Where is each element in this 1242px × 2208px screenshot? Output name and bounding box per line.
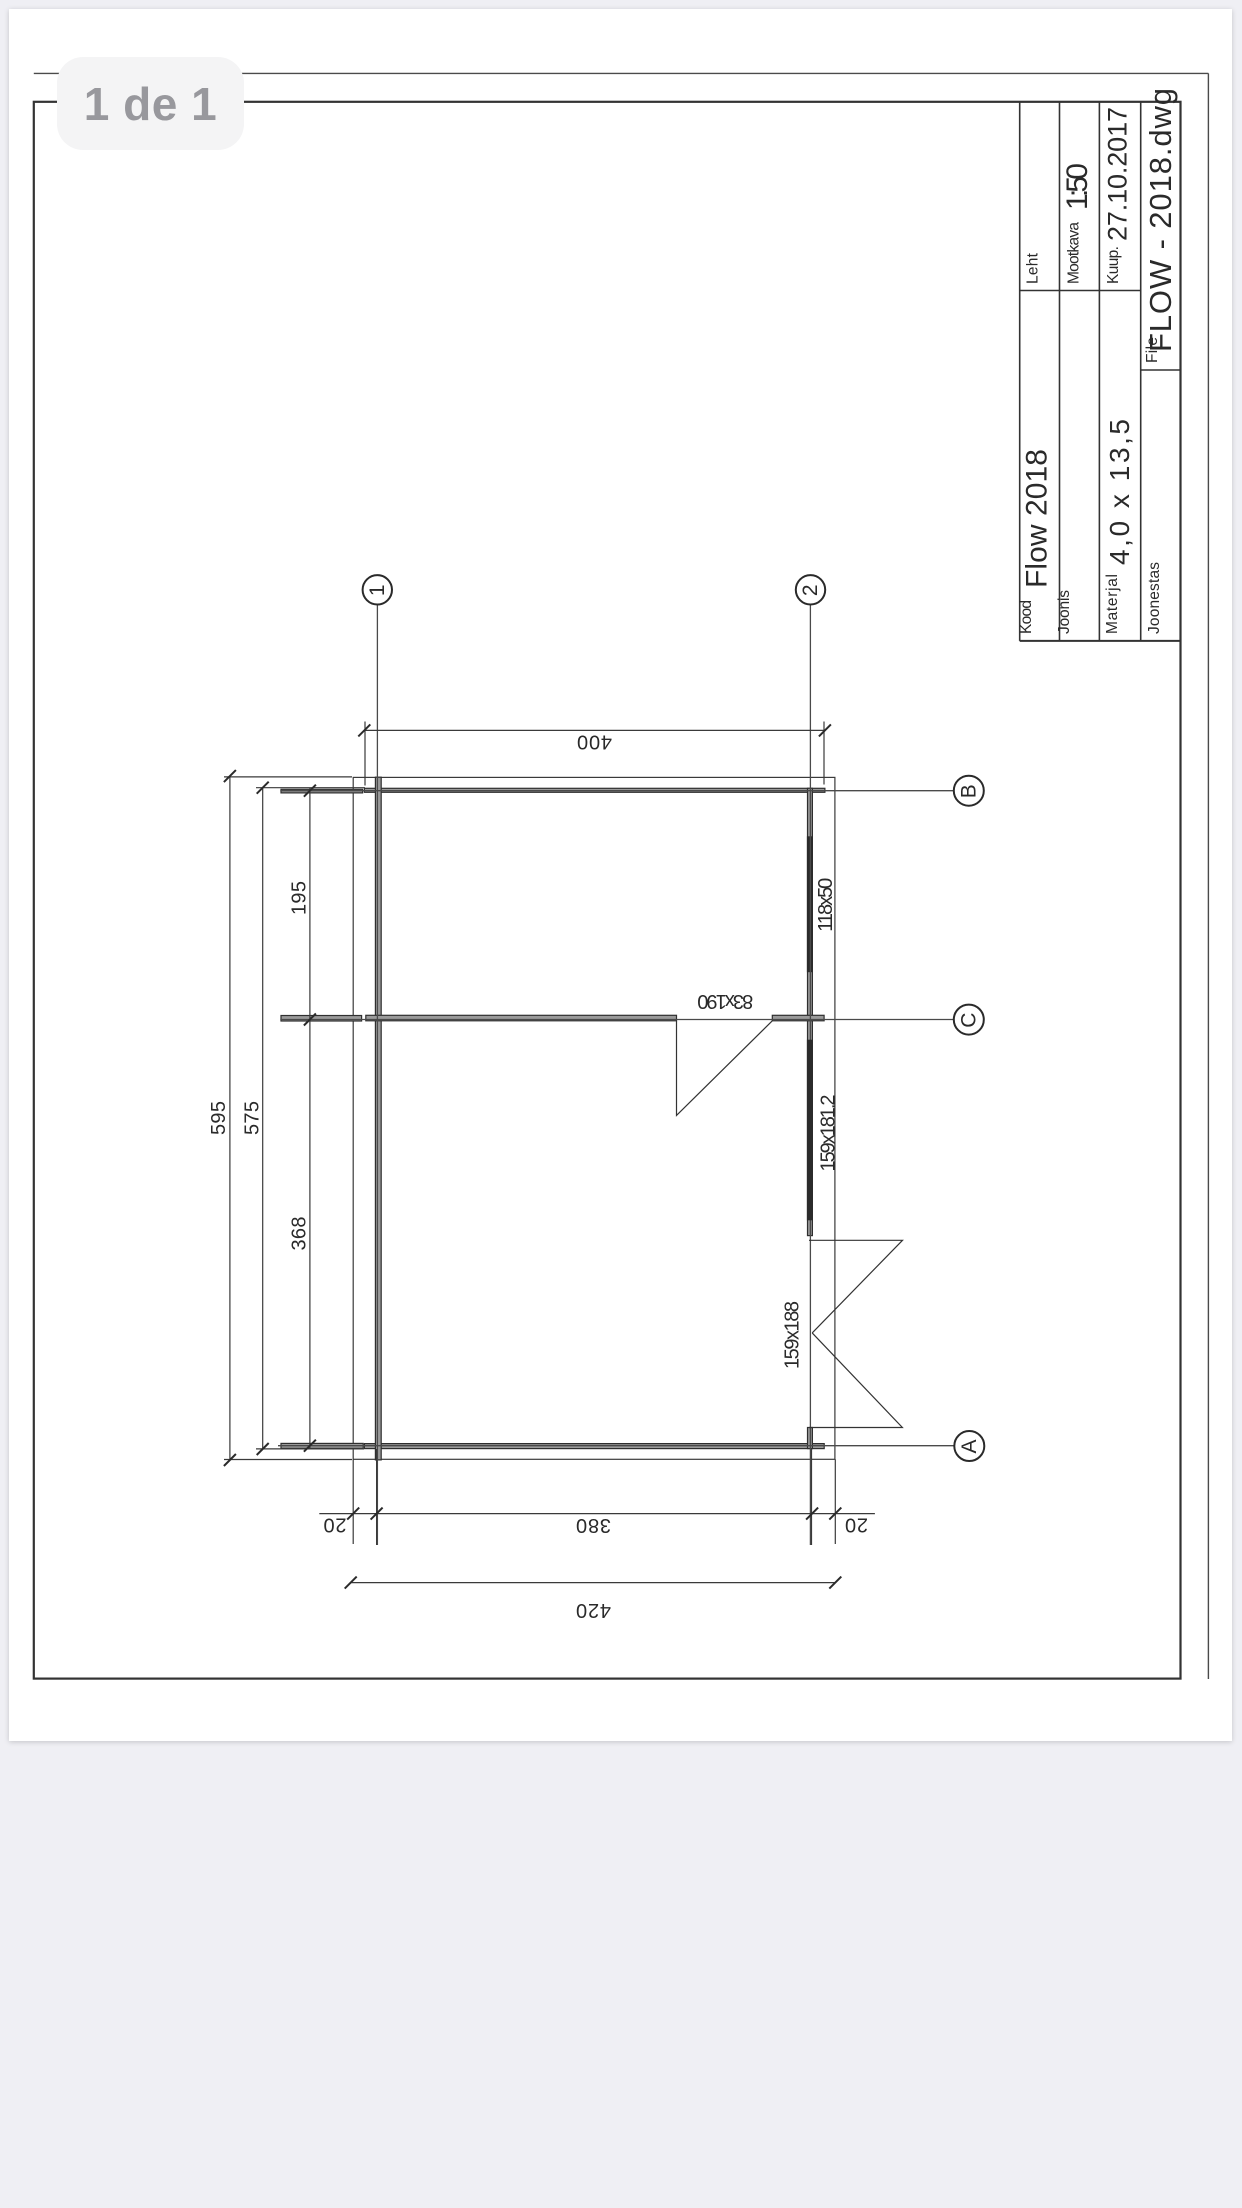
svg-text:20: 20	[845, 1514, 868, 1536]
svg-text:368: 368	[289, 1217, 311, 1251]
svg-text:A: A	[958, 1439, 981, 1453]
svg-text:159x188: 159x188	[781, 1301, 803, 1369]
svg-text:159x181.2: 159x181.2	[818, 1095, 840, 1172]
svg-text:27.10.2017: 27.10.2017	[1103, 107, 1133, 241]
svg-text:Leht: Leht	[1025, 252, 1042, 284]
svg-text:2: 2	[799, 584, 822, 596]
svg-text:83x190: 83x190	[697, 990, 753, 1012]
svg-text:FLOW - 2018.dwg: FLOW - 2018.dwg	[1143, 88, 1178, 352]
svg-text:Joonestas: Joonestas	[1146, 562, 1163, 634]
svg-text:Kuup.: Kuup.	[1105, 246, 1122, 284]
svg-text:380: 380	[576, 1514, 611, 1536]
svg-text:Joonis: Joonis	[1056, 590, 1073, 634]
svg-text:1: 1	[366, 584, 389, 596]
svg-text:1:50: 1:50	[1061, 163, 1094, 210]
svg-text:195: 195	[289, 881, 311, 915]
svg-text:Kood: Kood	[1018, 600, 1035, 634]
svg-text:B: B	[957, 784, 980, 798]
svg-text:118x50: 118x50	[815, 878, 837, 932]
svg-text:Mootkava: Mootkava	[1066, 222, 1083, 284]
svg-text:20: 20	[324, 1514, 347, 1536]
svg-text:400: 400	[577, 731, 612, 753]
svg-text:C: C	[957, 1013, 980, 1028]
svg-text:420: 420	[576, 1599, 611, 1621]
svg-text:Materjal: Materjal	[1104, 574, 1121, 634]
svg-text:4,0 x 13,5: 4,0 x 13,5	[1104, 419, 1135, 565]
svg-text:595: 595	[208, 1101, 230, 1135]
svg-text:Flow 2018: Flow 2018	[1021, 449, 1054, 588]
svg-text:575: 575	[242, 1101, 264, 1135]
